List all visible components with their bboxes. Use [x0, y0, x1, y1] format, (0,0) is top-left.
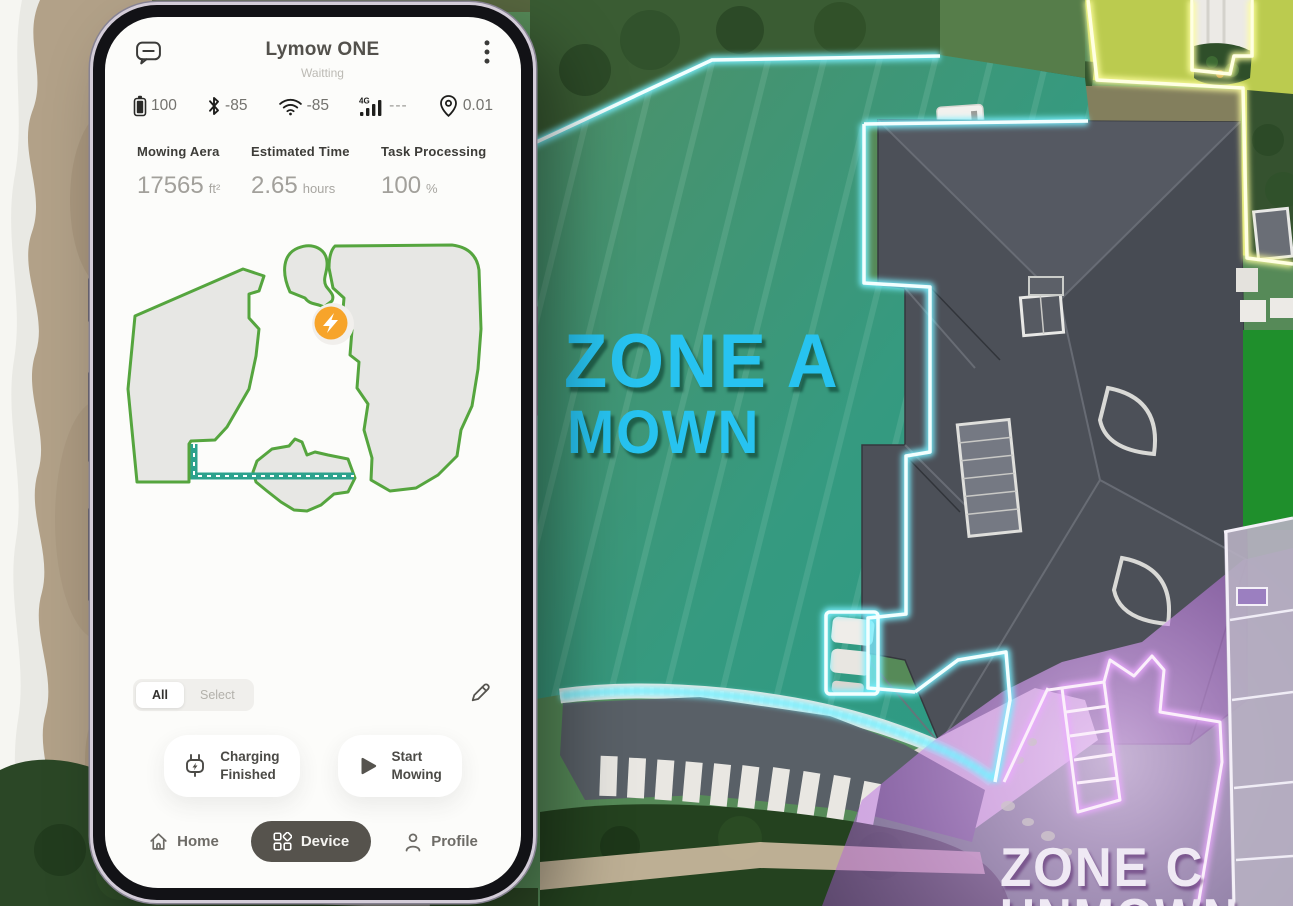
zone-filter-tabs: All Select: [133, 679, 254, 711]
map-toolbar: All Select: [105, 679, 521, 711]
zone-a-label: ZONE A: [564, 324, 840, 400]
cellular-icon: 4G: [359, 96, 385, 117]
svg-text:4G: 4G: [359, 96, 370, 105]
marketing-scene: ZONE A MOWN ZONE C UNMOWN Lymow ONE Wait…: [0, 0, 1293, 906]
zone-a-status-label: MOWN: [567, 402, 760, 463]
device-title: Lymow ONE: [162, 39, 483, 61]
gps-status: 0.01: [438, 94, 493, 118]
home-icon: [148, 831, 169, 852]
stat-task-processing: Task Processing 100 %: [381, 144, 495, 200]
profile-icon: [403, 832, 423, 852]
solar-panels: [957, 419, 1020, 536]
location-pin-icon: [438, 94, 459, 118]
turf-courtyard: [1243, 330, 1293, 530]
cellular-status: 4G ---: [359, 96, 408, 117]
battery-status: 100: [133, 95, 177, 117]
messages-icon[interactable]: [135, 39, 162, 70]
device-status-text: Waitting: [162, 66, 483, 80]
power-button[interactable]: [533, 305, 538, 417]
bluetooth-icon: [207, 95, 221, 117]
edit-map-icon[interactable]: [468, 680, 493, 710]
tab-select[interactable]: Select: [184, 682, 251, 708]
wifi-status: -85: [278, 97, 329, 116]
wifi-icon: [278, 97, 303, 116]
play-icon: [355, 753, 381, 779]
stat-estimated-time: Estimated Time 2.65 hours: [251, 144, 381, 200]
device-grid-icon: [273, 832, 292, 851]
driveway: [1224, 518, 1293, 906]
nav-profile[interactable]: Profile: [403, 832, 478, 852]
more-menu-icon[interactable]: [483, 39, 491, 70]
tab-all[interactable]: All: [136, 682, 184, 708]
charger-plug-icon: [181, 752, 209, 780]
device-status-bar: 100 -85 -85 4G: [105, 94, 521, 118]
battery-icon: [133, 95, 147, 117]
app-screen: Lymow ONE Waitting 100: [105, 17, 521, 888]
zone-c-status-label: UNMOWN: [1000, 892, 1239, 906]
lawn-map[interactable]: [105, 234, 521, 534]
nav-home[interactable]: Home: [148, 831, 219, 852]
nav-device[interactable]: Device: [251, 821, 371, 862]
action-buttons: Charging Finished Start Mowing: [105, 735, 521, 797]
charging-finished-button[interactable]: Charging Finished: [164, 735, 299, 797]
start-mowing-button[interactable]: Start Mowing: [338, 735, 462, 797]
app-header: Lymow ONE Waitting: [105, 17, 521, 80]
phone-mockup: Lymow ONE Waitting 100: [93, 5, 533, 900]
map-zone-right: [329, 245, 481, 491]
stat-mowing-area: Mowing Aera 17565 ft²: [137, 144, 251, 200]
bluetooth-status: -85: [207, 95, 247, 117]
bottom-nav: Home Device Profile: [105, 821, 521, 862]
mowing-stats: Mowing Aera 17565 ft² Estimated Time 2.6…: [105, 144, 521, 200]
map-zone-top: [285, 246, 333, 307]
zone-c-label: ZONE C: [1000, 840, 1204, 895]
